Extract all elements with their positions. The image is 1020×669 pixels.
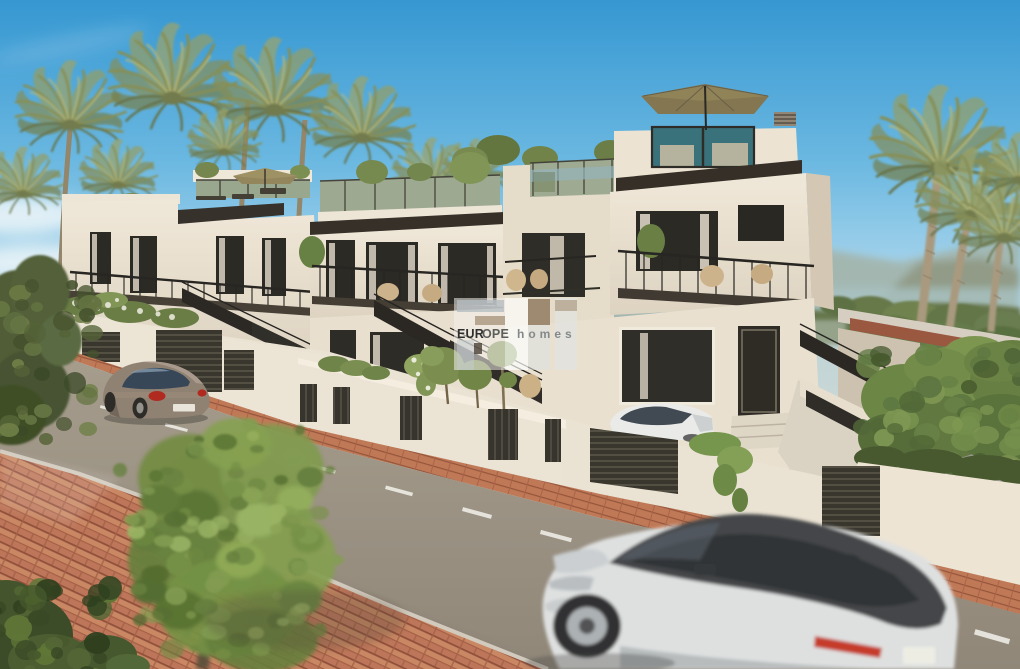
svg-text:OPE: OPE (482, 327, 509, 341)
svg-text:EUR: EUR (457, 327, 484, 341)
svg-text:homes: homes (517, 327, 576, 341)
